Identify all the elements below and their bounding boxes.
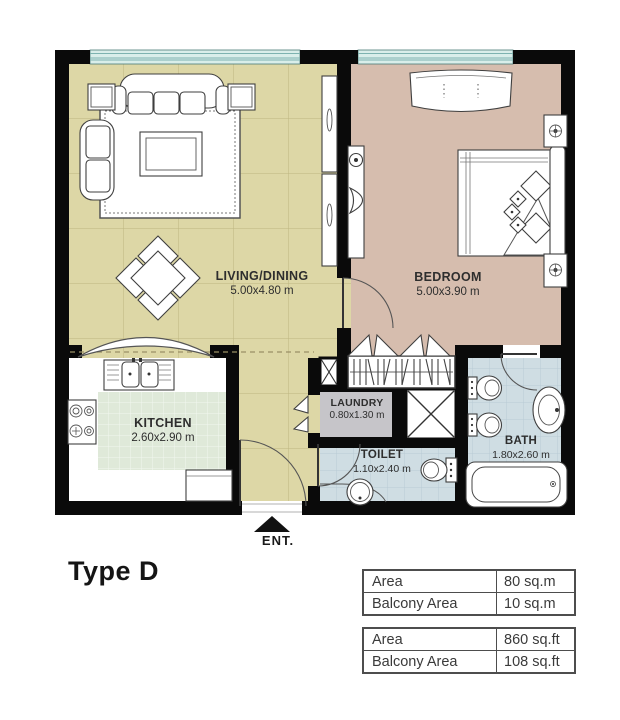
bedroom-window xyxy=(358,50,513,64)
living-room-name: LIVING/DINING xyxy=(216,269,309,283)
nightstand-top xyxy=(544,115,567,147)
toilet-name: TOILET xyxy=(353,449,411,462)
laundry-dims: 0.80x1.30 m xyxy=(329,410,384,422)
small-shaft xyxy=(320,358,338,386)
bath-name: BATH xyxy=(492,435,550,448)
loveseat xyxy=(80,120,114,200)
dresser xyxy=(410,70,512,112)
stove xyxy=(68,400,96,444)
side-table-left xyxy=(88,84,115,110)
toilet-dims: 1.10x2.40 m xyxy=(353,463,411,476)
area-tables: Area 80 sq.m Balcony Area 10 sq.m Area 8… xyxy=(362,569,576,685)
balcony-area-value: 10 sq.m xyxy=(496,593,574,614)
entrance-arrow-icon xyxy=(254,516,290,532)
area-value: 860 sq.ft xyxy=(496,629,574,650)
tv-unit xyxy=(348,146,364,258)
bedroom-name: BEDROOM xyxy=(414,270,481,284)
sofa xyxy=(112,74,230,114)
area-label: Area xyxy=(364,574,496,590)
floorplan-page: { "title": "Type D", "entrance_label": "… xyxy=(0,0,620,720)
bed xyxy=(458,146,565,260)
bath-label: BATH 1.80x2.60 m xyxy=(492,435,550,462)
table-row: Balcony Area 10 sq.m xyxy=(364,592,574,614)
nightstand-bottom xyxy=(544,254,567,287)
bath-dims: 1.80x2.60 m xyxy=(492,449,550,462)
laundry-name: LAUNDRY xyxy=(329,397,384,409)
bedroom-label: BEDROOM 5.00x3.90 m xyxy=(414,270,481,299)
living-room-dims: 5.00x4.80 m xyxy=(216,284,309,298)
table-row: Balcony Area 108 sq.ft xyxy=(364,650,574,672)
side-table-right xyxy=(228,84,255,110)
laundry-label: LAUNDRY 0.80x1.30 m xyxy=(329,397,384,422)
area-label: Area xyxy=(364,632,496,648)
toilet-label: TOILET 1.10x2.40 m xyxy=(353,449,411,476)
living-room-label: LIVING/DINING 5.00x4.80 m xyxy=(216,269,309,298)
living-cabinet xyxy=(322,76,337,266)
bath-bidet xyxy=(468,413,502,437)
bedroom-dims: 5.00x3.90 m xyxy=(414,285,481,299)
area-value: 80 sq.m xyxy=(496,571,574,592)
kitchen-sink xyxy=(104,358,174,390)
service-shaft xyxy=(405,388,457,440)
bathtub xyxy=(466,462,567,507)
plan-title: Type D xyxy=(68,556,159,587)
table-row: Area 80 sq.m xyxy=(364,571,574,592)
area-table-metric: Area 80 sq.m Balcony Area 10 sq.m xyxy=(362,569,576,616)
table-row: Area 860 sq.ft xyxy=(364,629,574,650)
balcony-area-value: 108 sq.ft xyxy=(496,651,574,672)
kitchen-name: KITCHEN xyxy=(131,416,194,430)
area-table-imperial: Area 860 sq.ft Balcony Area 108 sq.ft xyxy=(362,627,576,674)
bath-sink xyxy=(533,387,565,433)
kitchen-dims: 2.60x2.90 m xyxy=(131,431,194,445)
kitchen-counter xyxy=(186,470,232,501)
coffee-table xyxy=(140,132,202,176)
kitchen-label: KITCHEN 2.60x2.90 m xyxy=(131,416,194,445)
bath-wc xyxy=(468,376,502,400)
entrance-label: ENT. xyxy=(262,533,294,548)
balcony-area-label: Balcony Area xyxy=(364,654,496,670)
balcony-area-label: Balcony Area xyxy=(364,596,496,612)
wardrobe xyxy=(348,356,455,388)
toilet-wc xyxy=(421,458,457,482)
living-window xyxy=(90,50,300,64)
